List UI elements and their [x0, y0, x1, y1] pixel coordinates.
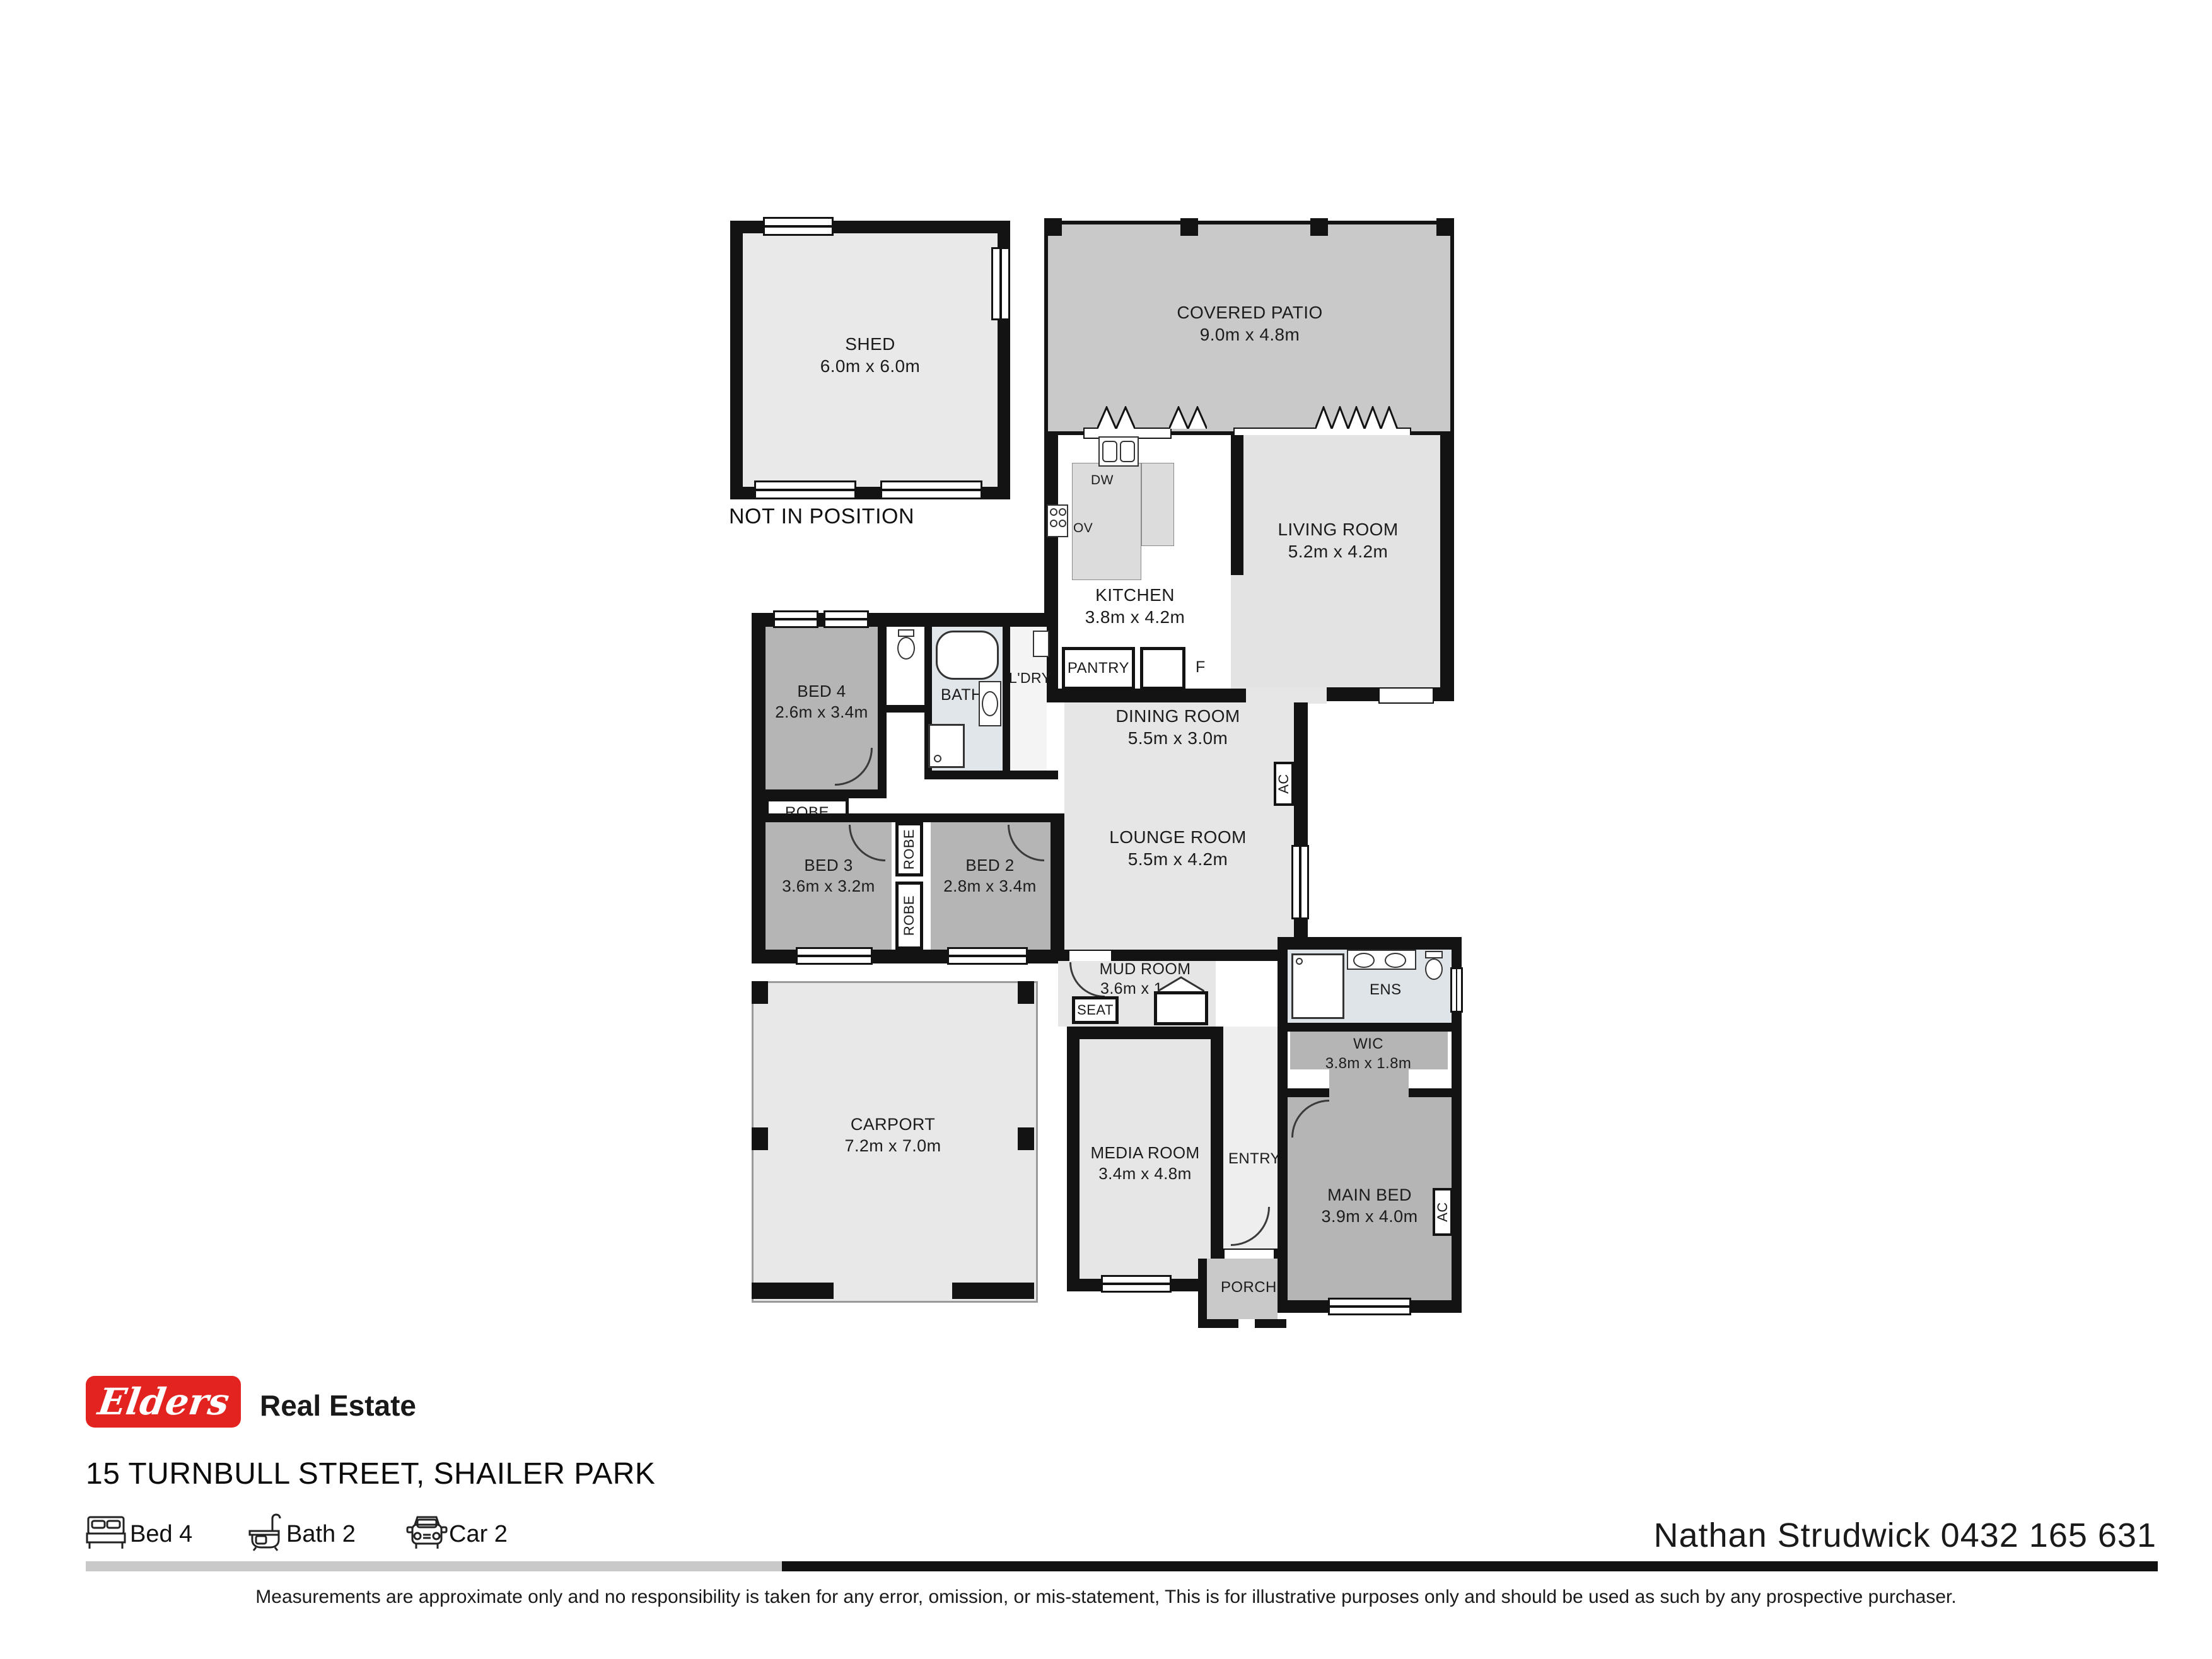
- pantry-box: PANTRY: [1062, 647, 1135, 690]
- wall: [1198, 1319, 1238, 1328]
- lounge-room-name: LOUNGE ROOM: [1109, 826, 1247, 848]
- bed3-label: BED 3 3.6m x 3.2m: [782, 855, 875, 897]
- wall: [952, 1283, 1034, 1299]
- main-bed-dims: 3.9m x 4.0m: [1322, 1206, 1418, 1227]
- main-bed-window: [1328, 1298, 1411, 1315]
- sink-bowl: [1102, 441, 1117, 462]
- agent-name: Nathan Strudwick 0432 165 631: [1653, 1516, 2157, 1555]
- floorplan-page: SHED 6.0m x 6.0m NOT IN POSITION COVERED…: [0, 0, 2212, 1659]
- vanity-basin: [979, 681, 1001, 726]
- kitchen-name: KITCHEN: [1085, 584, 1185, 606]
- not-in-position-note: NOT IN POSITION: [729, 504, 914, 529]
- shed-window-right: [991, 247, 1010, 320]
- shed-dims: 6.0m x 6.0m: [820, 355, 920, 377]
- wall: [1044, 689, 1246, 702]
- carport-post: [752, 981, 768, 1004]
- main-bed-label: MAIN BED 3.9m x 4.0m: [1322, 1184, 1418, 1227]
- wall: [1255, 1319, 1286, 1328]
- bed4-name: BED 4: [775, 681, 868, 702]
- media-room-window: [1101, 1275, 1172, 1293]
- living-room-dims: 5.2m x 4.2m: [1278, 540, 1398, 562]
- bath-icon: [247, 1511, 284, 1551]
- bed-feature: Bed 4: [130, 1521, 192, 1548]
- bed4-label: BED 4 2.6m x 3.4m: [775, 681, 868, 723]
- ac-label: AC: [1276, 774, 1292, 794]
- bed2-label: BED 2 2.8m x 3.4m: [943, 855, 1036, 897]
- brand-suffix: Real Estate: [260, 1388, 416, 1423]
- kitchen-sink: [1098, 436, 1139, 467]
- sliding-door-zigzag-icon: [1097, 406, 1135, 429]
- toilet-bowl-icon: [897, 637, 915, 660]
- elders-logo-text: Elders: [95, 1383, 231, 1420]
- ens-window: [1450, 967, 1463, 1013]
- wall: [1278, 937, 1462, 950]
- dishwasher-label: DW: [1091, 473, 1114, 488]
- wic-label: WIC 3.8m x 1.8m: [1325, 1034, 1411, 1073]
- burner: [1059, 520, 1066, 527]
- porch-label: PORCH: [1221, 1279, 1277, 1296]
- kitchen-label: KITCHEN 3.8m x 4.2m: [1085, 584, 1185, 628]
- bath-label: BATH: [941, 686, 982, 704]
- bed2-name: BED 2: [943, 855, 1036, 876]
- divider-bar-gray: [86, 1561, 782, 1571]
- wic-neck-floor: [1329, 1069, 1409, 1098]
- media-room-name: MEDIA ROOM: [1090, 1143, 1199, 1163]
- carport-dims: 7.2m x 7.0m: [845, 1135, 941, 1156]
- laundry-door-cupboard: [1033, 631, 1049, 657]
- ac-label: AC: [1435, 1202, 1451, 1222]
- bed3-window: [796, 947, 873, 965]
- robe-box: ROBE: [895, 882, 923, 950]
- open-plan-connector: [1246, 687, 1327, 704]
- bed-icon: [86, 1515, 126, 1551]
- elders-logo: Elders: [86, 1376, 241, 1428]
- bathtub-icon: [936, 631, 999, 680]
- ens-shower: [1291, 953, 1344, 1019]
- burner: [1050, 520, 1057, 527]
- burner: [1059, 508, 1066, 516]
- basin-icon: [1385, 953, 1406, 968]
- living-door-opening: [1378, 687, 1434, 704]
- covered-patio-name: COVERED PATIO: [1177, 301, 1322, 323]
- sliding-door-zigzag-icon: [1169, 406, 1207, 429]
- fridge-label: F: [1196, 658, 1206, 677]
- dining-room-dims: 5.5m x 3.0m: [1115, 727, 1240, 749]
- bed3-dims: 3.6m x 3.2m: [782, 876, 875, 897]
- living-room-floor: [1231, 435, 1453, 700]
- mudroom-closet: [1154, 991, 1208, 1025]
- address-title: 15 TURNBULL STREET, SHAILER PARK: [86, 1457, 655, 1491]
- wall: [1409, 1088, 1462, 1097]
- kitchen-bench-arm: [1141, 463, 1174, 546]
- car-icon: [406, 1513, 448, 1551]
- laundry-label: L'DRY: [1009, 670, 1051, 687]
- burner: [1050, 508, 1057, 516]
- sliding-door-zigzag-icon: [1315, 406, 1399, 429]
- robe-label: ROBE: [901, 829, 917, 870]
- bed2-window: [947, 947, 1028, 965]
- kitchen-dims: 3.8m x 4.2m: [1085, 606, 1185, 628]
- toilet-icon: [898, 629, 914, 637]
- wall: [924, 771, 1058, 779]
- seat-box: SEAT: [1072, 996, 1119, 1024]
- shed-name: SHED: [820, 333, 920, 355]
- bath-feature: Bath 2: [286, 1521, 356, 1548]
- toilet-icon: [1425, 951, 1443, 958]
- shed-label: SHED 6.0m x 6.0m: [820, 333, 920, 377]
- entry-label: ENTRY: [1228, 1150, 1281, 1168]
- closet-door-mark-icon: [1158, 976, 1204, 991]
- wall: [1278, 937, 1288, 1313]
- bed3-name: BED 3: [782, 855, 875, 876]
- wall: [1051, 813, 1064, 962]
- bed4-window: [824, 610, 869, 628]
- wall: [752, 789, 887, 798]
- lounge-room-dims: 5.5m x 4.2m: [1109, 848, 1247, 870]
- ens-vanity: [1347, 950, 1416, 970]
- wall: [752, 1283, 834, 1299]
- bed2-dims: 2.8m x 3.4m: [943, 876, 1036, 897]
- wall: [1231, 435, 1243, 575]
- wic-name: WIC: [1325, 1034, 1411, 1054]
- living-room-name: LIVING ROOM: [1278, 518, 1398, 540]
- ens-label: ENS: [1370, 981, 1402, 999]
- wall: [752, 813, 765, 962]
- shower-drain-icon: [934, 755, 941, 762]
- media-room-dims: 3.4m x 4.8m: [1090, 1163, 1199, 1184]
- wall: [1198, 1259, 1207, 1328]
- fridge-box: [1140, 647, 1185, 690]
- shed-window-bottom-left: [754, 480, 856, 499]
- carport-post: [1018, 981, 1034, 1004]
- patio-post: [1180, 218, 1198, 236]
- wall: [1440, 435, 1454, 700]
- bed4-dims: 2.6m x 3.4m: [775, 702, 868, 723]
- wall: [887, 705, 924, 713]
- wall: [878, 627, 887, 792]
- robe-box: ROBE: [895, 822, 923, 876]
- carport-label: CARPORT 7.2m x 7.0m: [845, 1114, 941, 1156]
- patio-post: [1436, 218, 1454, 236]
- divider-bar-black: [782, 1561, 2158, 1571]
- wic-dims: 3.8m x 1.8m: [1325, 1054, 1411, 1073]
- basin-icon: [1353, 953, 1375, 968]
- basin-icon: [982, 691, 998, 716]
- dining-room-label: DINING ROOM 5.5m x 3.0m: [1115, 705, 1240, 749]
- ac-unit: AC: [1274, 762, 1294, 806]
- carport-post: [1018, 1127, 1034, 1150]
- media-room-label: MEDIA ROOM 3.4m x 4.8m: [1090, 1143, 1199, 1184]
- carport-name: CARPORT: [845, 1114, 941, 1135]
- wall: [1003, 627, 1010, 778]
- sink-bowl: [1120, 441, 1135, 462]
- shower-drain-icon: [1296, 958, 1303, 965]
- wall: [752, 813, 1058, 822]
- wall: [1278, 1023, 1462, 1032]
- lounge-room-label: LOUNGE ROOM 5.5m x 4.2m: [1109, 826, 1247, 870]
- covered-patio-dims: 9.0m x 4.8m: [1177, 323, 1322, 346]
- shed-window-bottom-right: [880, 480, 982, 499]
- patio-post: [1044, 218, 1062, 236]
- shower-icon: [928, 724, 965, 768]
- main-bed-name: MAIN BED: [1322, 1184, 1418, 1206]
- disclaimer-text: Measurements are approximate only and no…: [230, 1586, 1982, 1608]
- toilet-bowl-icon: [1425, 958, 1443, 980]
- stove-cooktop: [1047, 504, 1068, 537]
- living-room-label: LIVING ROOM 5.2m x 4.2m: [1278, 518, 1398, 562]
- lounge-window-right: [1291, 845, 1309, 919]
- shed-window-top: [763, 217, 834, 236]
- wall: [1278, 1088, 1329, 1097]
- patio-post: [1310, 218, 1328, 236]
- oven-label: OV: [1073, 521, 1093, 536]
- robe-label: ROBE: [901, 895, 917, 936]
- ac-unit: AC: [1433, 1188, 1453, 1236]
- carport-post: [752, 1127, 768, 1150]
- dining-room-name: DINING ROOM: [1115, 705, 1240, 727]
- bed4-window: [773, 610, 818, 628]
- covered-patio-label: COVERED PATIO 9.0m x 4.8m: [1177, 301, 1322, 346]
- car-feature: Car 2: [449, 1521, 508, 1548]
